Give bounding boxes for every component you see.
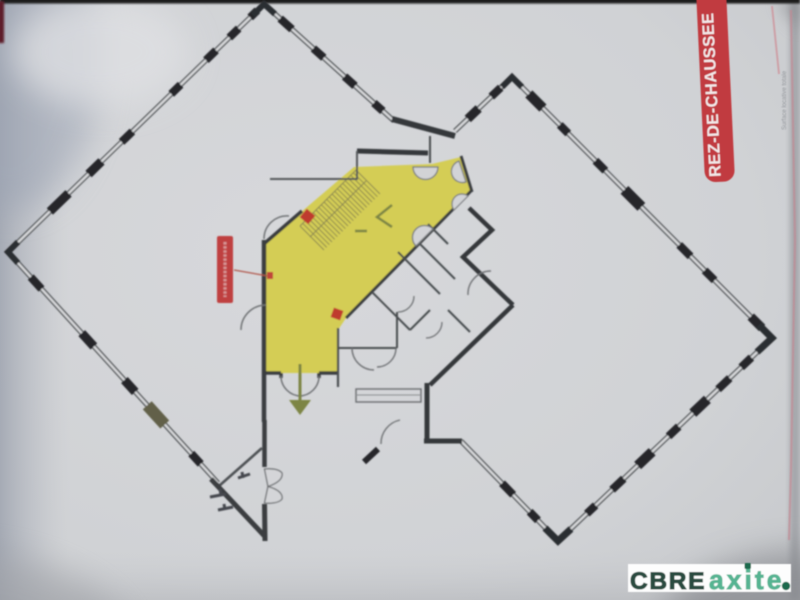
svg-text:axite: axite [709,565,781,595]
svg-text:Surface locative totale: Surface locative totale [782,70,788,130]
